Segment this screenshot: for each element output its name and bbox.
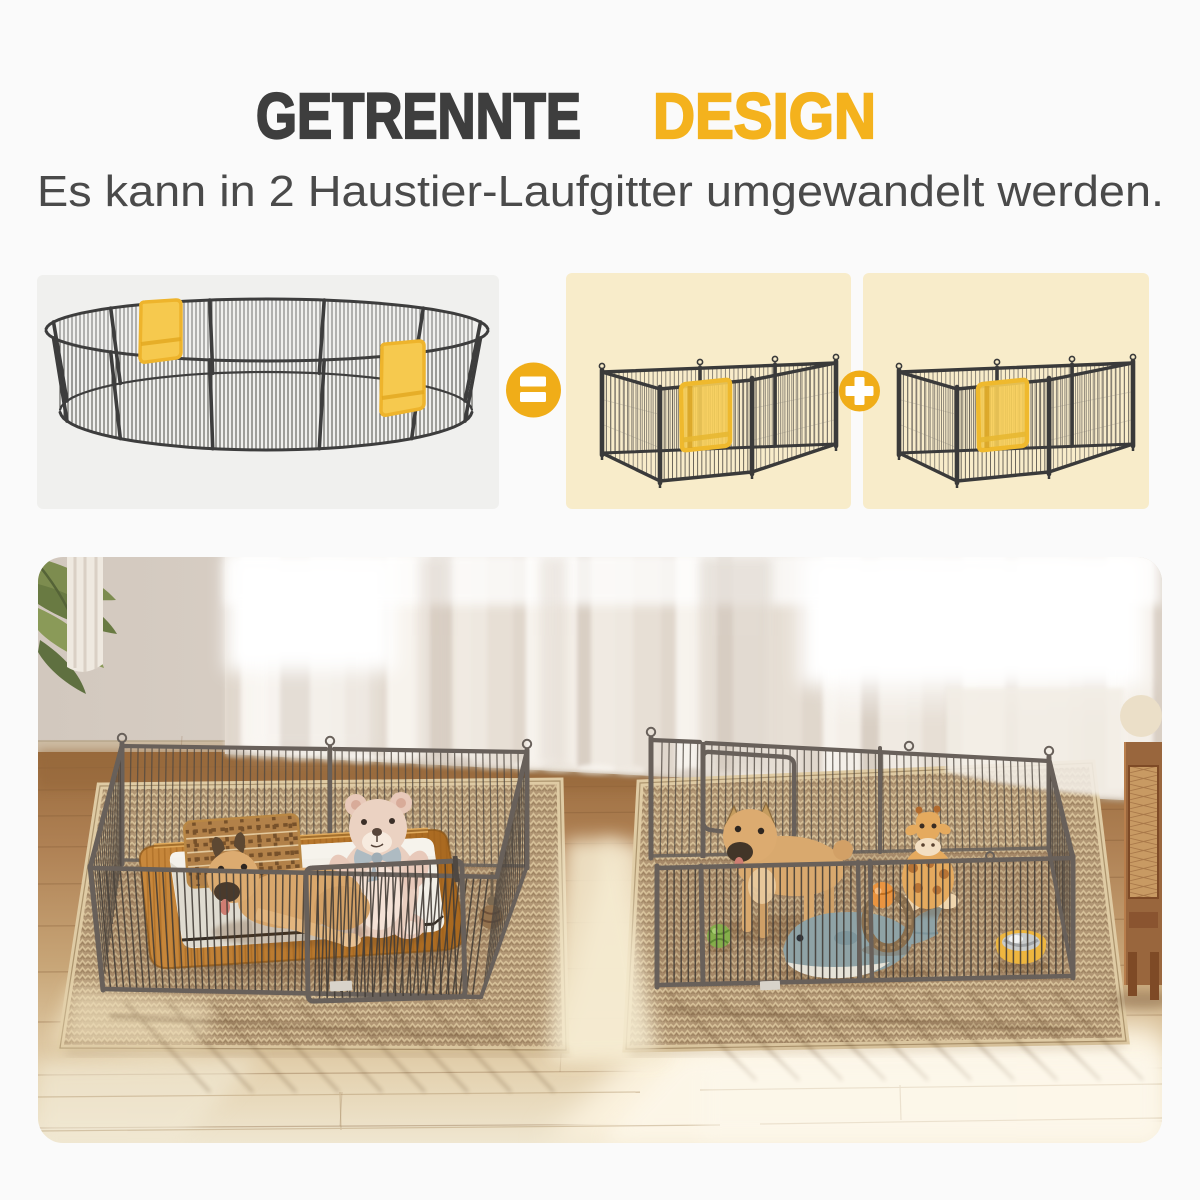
svg-text:DESIGN: DESIGN: [653, 80, 876, 152]
svg-text:GETRENNTE: GETRENNTE: [256, 80, 581, 152]
svg-text:Es kann in 2 Haustier-Laufgitt: Es kann in 2 Haustier-Laufgitter umgewan…: [37, 167, 1164, 216]
